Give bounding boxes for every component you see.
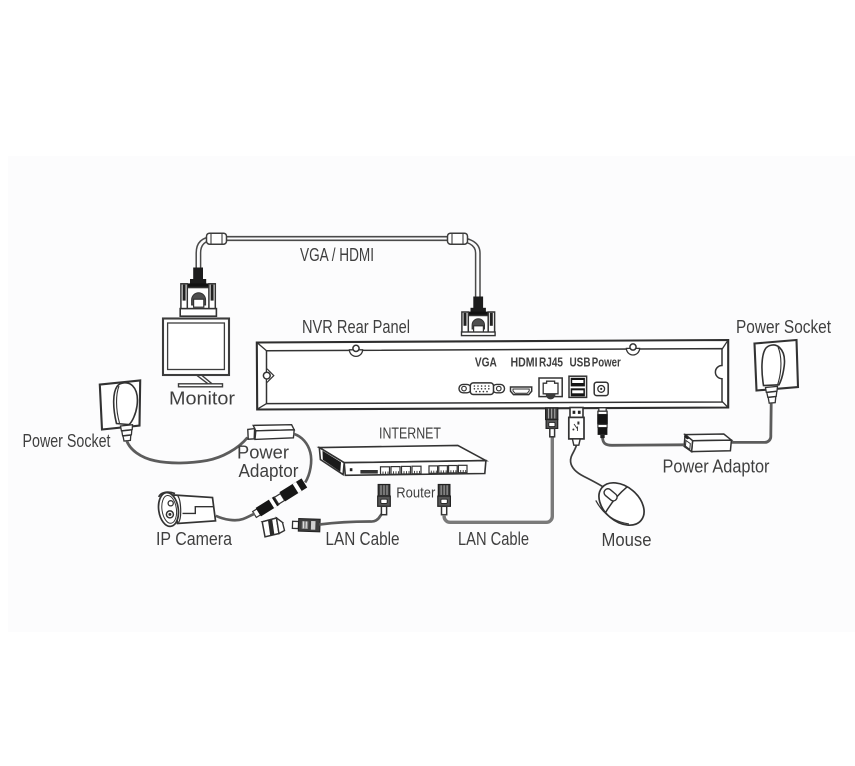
svg-text:VGA / HDMI: VGA / HDMI <box>300 244 374 265</box>
svg-text:Power Socket: Power Socket <box>23 430 111 451</box>
svg-text:Monitor: Monitor <box>169 388 235 409</box>
svg-text:RJ45: RJ45 <box>539 355 563 370</box>
svg-text:NVR Rear Panel: NVR Rear Panel <box>302 316 410 337</box>
svg-text:HDMI: HDMI <box>511 355 538 370</box>
svg-text:VGA: VGA <box>475 355 497 370</box>
svg-text:Adaptor: Adaptor <box>239 460 299 481</box>
svg-text:Power: Power <box>592 355 621 370</box>
svg-text:Mouse: Mouse <box>602 529 652 550</box>
svg-text:Router: Router <box>396 485 435 502</box>
svg-text:Power Socket: Power Socket <box>736 316 831 337</box>
svg-text:INTERNET: INTERNET <box>379 426 441 443</box>
svg-text:USB: USB <box>570 355 591 370</box>
svg-text:IP Camera: IP Camera <box>156 528 233 549</box>
svg-text:LAN Cable: LAN Cable <box>458 528 529 549</box>
svg-text:LAN Cable: LAN Cable <box>326 528 400 549</box>
svg-text:Power Adaptor: Power Adaptor <box>663 456 770 477</box>
